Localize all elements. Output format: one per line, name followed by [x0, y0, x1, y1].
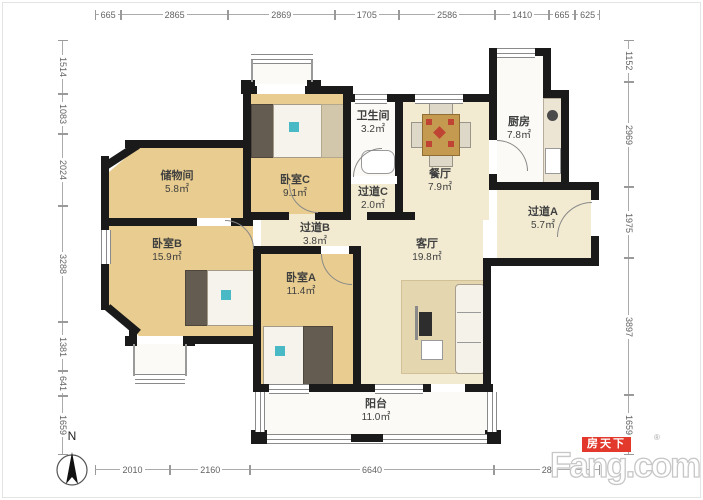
dimension-segment: 3897	[624, 258, 634, 395]
window	[355, 94, 387, 104]
dresser-bedroom-c	[321, 104, 345, 158]
window	[375, 384, 423, 394]
dimension-value: 1514	[58, 55, 68, 79]
room-label-hallway-a: 过道A5.7㎡	[528, 206, 558, 232]
bay-window-side	[251, 60, 253, 82]
floor-bay-window-b	[135, 344, 185, 378]
wardrobe-bedroom-a	[303, 326, 333, 386]
dimension-value: 2586	[435, 10, 459, 20]
balcony-rail	[255, 392, 265, 432]
door-opening-balcony	[431, 384, 465, 392]
wall	[395, 94, 403, 220]
room-area: 3.2㎡	[357, 124, 390, 137]
bay-window-post	[307, 80, 321, 90]
dimension-segment: 1514	[58, 40, 68, 94]
room-name: 过道C	[358, 186, 388, 200]
wall	[243, 86, 251, 220]
dimension-chain-top: 665 2865 2869 1705 2586 1410 665 625	[95, 10, 600, 20]
dimension-segment: 2869	[228, 10, 335, 20]
dimension-segment: 1083	[58, 94, 68, 133]
room-area: 7.9㎡	[428, 182, 452, 195]
tv	[419, 312, 432, 336]
dimension-value: 665	[99, 10, 118, 20]
room-name: 卧室B	[152, 238, 182, 252]
window	[269, 384, 309, 394]
placemat	[426, 119, 432, 125]
coffee-table	[421, 340, 443, 360]
wall	[489, 182, 599, 190]
room-area: 5.8㎡	[161, 184, 194, 197]
dimension-value: 2024	[58, 158, 68, 182]
placemat	[448, 119, 454, 125]
room-name: 过道A	[528, 206, 558, 220]
bay-window-c	[251, 54, 313, 64]
dining-chair	[459, 122, 471, 148]
room-label-hallway-b: 过道B3.8㎡	[300, 222, 330, 248]
bay-window-side	[185, 344, 187, 376]
dimension-value: 641	[58, 374, 68, 393]
bay-window-b	[135, 374, 185, 384]
dimension-value: 665	[553, 10, 572, 20]
dimension-value: 625	[578, 10, 597, 20]
dimension-segment: 641	[58, 371, 68, 395]
dimension-segment: 2586	[399, 10, 495, 20]
balcony-post	[485, 430, 501, 444]
pillow-bedroom-b	[221, 290, 231, 300]
fang-logo-cn-badge: 房天下	[582, 437, 631, 452]
door-opening-bathroom	[353, 176, 397, 184]
dimension-segment: 2010	[95, 465, 170, 475]
dimension-segment: 665	[549, 10, 575, 20]
dimension-value: 1410	[510, 10, 534, 20]
north-arrow-icon	[52, 443, 92, 491]
wall	[353, 254, 361, 384]
room-name: 储物间	[161, 170, 194, 184]
room-area: 19.8㎡	[412, 252, 441, 265]
dimension-value: 2865	[163, 10, 187, 20]
compass-label: N	[48, 430, 96, 443]
dimension-segment: 1410	[495, 10, 549, 20]
room-area: 11.4㎡	[286, 286, 316, 299]
wall	[489, 258, 599, 266]
kitchen-sink	[547, 110, 558, 121]
balcony-post	[251, 430, 267, 444]
dimension-value: 1659	[58, 413, 68, 437]
room-area: 11.0㎡	[362, 412, 391, 425]
dimension-segment: 1975	[624, 187, 634, 258]
dimension-segment: 6640	[250, 465, 493, 475]
door-opening-kitchen	[489, 140, 497, 174]
dimension-segment: 625	[575, 10, 600, 20]
room-label-hallway-c: 过道C2.0㎡	[358, 186, 388, 212]
dimension-segment: 665	[95, 10, 121, 20]
wall	[561, 90, 569, 190]
dimension-segment: 2160	[170, 465, 250, 475]
room-area: 5.7㎡	[528, 220, 558, 233]
room-label-bedroom-b: 卧室B15.9㎡	[152, 238, 182, 264]
dimension-segment: 1705	[335, 10, 399, 20]
room-label-storage: 储物间5.8㎡	[161, 170, 194, 196]
sofa	[455, 284, 485, 374]
bed-bedroom-b	[207, 270, 255, 326]
door-opening-entry	[591, 200, 599, 236]
room-label-balcony: 阳台11.0㎡	[362, 398, 391, 424]
floor-plan: 储物间5.8㎡ 卧室C9.1㎡ 卫生间3.2㎡ 过道C2.0㎡ 餐厅7.9㎡ 厨…	[95, 40, 600, 455]
bay-window-side	[133, 344, 135, 376]
pillow-bedroom-c	[289, 122, 299, 132]
window	[415, 94, 463, 104]
room-name: 卧室A	[286, 272, 316, 286]
dimension-chain-bottom: 2010 2160 6640 28	[95, 465, 600, 475]
dimension-segment: 1152	[624, 40, 634, 82]
placemat	[448, 141, 454, 147]
room-name: 餐厅	[428, 168, 452, 182]
wall	[191, 336, 261, 344]
room-name: 厨房	[507, 116, 531, 130]
room-label-living: 客厅19.8㎡	[412, 238, 441, 264]
dimension-chain-left: 1514 1083 2024 3288 1381 641 1659	[58, 40, 68, 455]
dining-chair	[429, 155, 453, 167]
wall	[125, 140, 251, 148]
compass-north: N	[48, 430, 96, 496]
dimension-segment: 2024	[58, 134, 68, 206]
window	[497, 48, 535, 58]
dimension-value: 1152	[624, 49, 634, 72]
room-label-bedroom-c: 卧室C9.1㎡	[280, 174, 310, 200]
nightstand-bedroom-b	[185, 270, 209, 326]
room-name: 阳台	[362, 398, 391, 412]
window	[101, 230, 111, 264]
room-area: 3.8㎡	[300, 236, 330, 249]
wall	[343, 94, 351, 220]
wall	[367, 212, 415, 220]
dimension-value: 1381	[58, 335, 68, 359]
wardrobe-bedroom-c	[251, 104, 275, 158]
room-label-dining: 餐厅7.9㎡	[428, 168, 452, 194]
wall	[483, 258, 491, 384]
dimension-value: 2010	[120, 465, 144, 475]
dimension-segment: 2865	[121, 10, 228, 20]
registered-mark-icon: ®	[654, 433, 660, 442]
door-opening-bedroom-b	[253, 220, 261, 246]
bay-window-side	[311, 60, 313, 82]
dimension-segment: 2969	[624, 82, 634, 187]
fang-logo-text: Fang.com	[550, 446, 699, 486]
kitchen-stove	[545, 148, 561, 174]
wall	[315, 212, 347, 220]
room-name: 过道B	[300, 222, 330, 236]
dimension-value: 3288	[58, 252, 68, 276]
sofa-cushion-line	[457, 342, 481, 343]
dimension-value: 2869	[269, 10, 293, 20]
room-name: 卫生间	[357, 110, 390, 124]
balcony-rail	[487, 392, 497, 432]
dimension-value: 2160	[198, 465, 222, 475]
placemat	[426, 141, 432, 147]
dimension-value: 1083	[58, 102, 68, 126]
room-area: 15.9㎡	[152, 252, 182, 265]
dimension-segment: 1381	[58, 322, 68, 372]
room-label-kitchen: 厨房7.8㎡	[507, 116, 531, 142]
floor-kitchen-upper	[497, 56, 543, 98]
dimension-value: 6640	[360, 465, 384, 475]
sofa-cushion-line	[457, 312, 481, 313]
bay-window-post	[125, 336, 137, 346]
dimension-value: 1705	[355, 10, 379, 20]
dimension-chain-right: 1152 2969 1975 3897 1659	[624, 40, 634, 455]
room-label-bedroom-a: 卧室A11.4㎡	[286, 272, 316, 298]
room-area: 2.0㎡	[358, 200, 388, 213]
pillow-bedroom-a	[275, 346, 285, 356]
bed-bedroom-a	[263, 326, 305, 386]
room-name: 卧室C	[280, 174, 310, 188]
dimension-value: 1975	[624, 211, 634, 235]
wall	[353, 384, 493, 392]
room-name: 客厅	[412, 238, 441, 252]
wall	[243, 212, 289, 220]
dimension-value: 1659	[624, 413, 634, 437]
fang-watermark: Fang.com 房天下 ®	[550, 436, 703, 496]
balcony-post	[351, 434, 383, 442]
tv-stand	[415, 306, 418, 340]
dimension-segment: 3288	[58, 206, 68, 322]
room-area: 7.8㎡	[507, 130, 531, 143]
room-area: 9.1㎡	[280, 188, 310, 201]
dimension-value: 2969	[624, 123, 634, 147]
room-label-bathroom: 卫生间3.2㎡	[357, 110, 390, 136]
dimension-value: 3897	[624, 315, 634, 339]
